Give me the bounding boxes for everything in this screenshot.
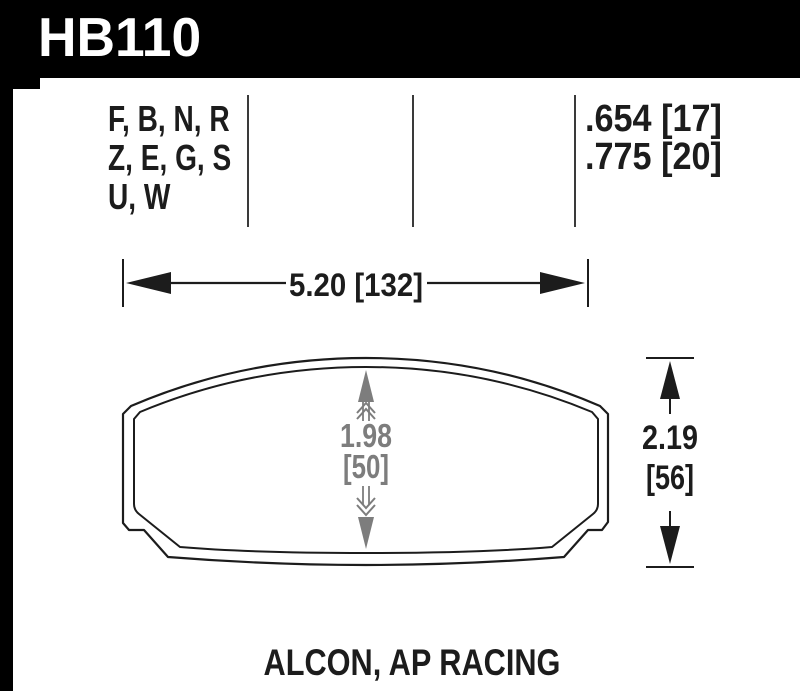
compound-codes: F, B, N, R Z, E, G, S U, W <box>108 99 231 216</box>
center-chevron-down-2 <box>357 505 375 515</box>
caliper-applications: ALCON, AP RACING <box>205 644 620 681</box>
center-chevron-down-1 <box>357 498 375 508</box>
column-divider-1 <box>247 95 249 227</box>
height-dimension-mm: [56] <box>646 459 694 497</box>
compound-codes-line-2: Z, E, G, S <box>108 138 231 177</box>
width-dimension: 5.20 [132] <box>123 259 588 307</box>
part-number: HB110 <box>38 10 201 65</box>
column-divider-3 <box>574 95 576 227</box>
width-arrow-left-icon <box>126 272 171 294</box>
center-dimension: 1.98 [50] <box>340 370 392 549</box>
compound-codes-line-3: U, W <box>108 177 231 216</box>
height-dimension-inches: 2.19 <box>642 419 698 457</box>
pad-thickness-line-1: .654 [17] <box>585 100 722 138</box>
compound-codes-line-1: F, B, N, R <box>108 99 231 138</box>
height-arrow-up-icon <box>660 361 680 399</box>
center-dimension-mm: [50] <box>343 448 389 485</box>
pad-thickness-values: .654 [17] .775 [20] <box>585 100 722 176</box>
height-arrow-down-icon <box>660 526 680 564</box>
center-arrow-up-icon <box>358 370 374 402</box>
pad-drawing: 5.20 [132] 1.98 [50] 2 <box>0 240 800 640</box>
column-divider-2 <box>412 95 414 227</box>
pad-thickness-line-2: .775 [20] <box>585 138 722 176</box>
height-dimension: 2.19 [56] <box>642 358 698 567</box>
width-arrow-right-icon <box>540 272 585 294</box>
brake-pad-spec-sheet: HB110 F, B, N, R Z, E, G, S U, W .654 [1… <box>0 0 800 691</box>
width-dimension-label: 5.20 [132] <box>289 267 423 303</box>
center-arrow-down-icon <box>358 517 374 549</box>
header-step <box>13 78 40 89</box>
